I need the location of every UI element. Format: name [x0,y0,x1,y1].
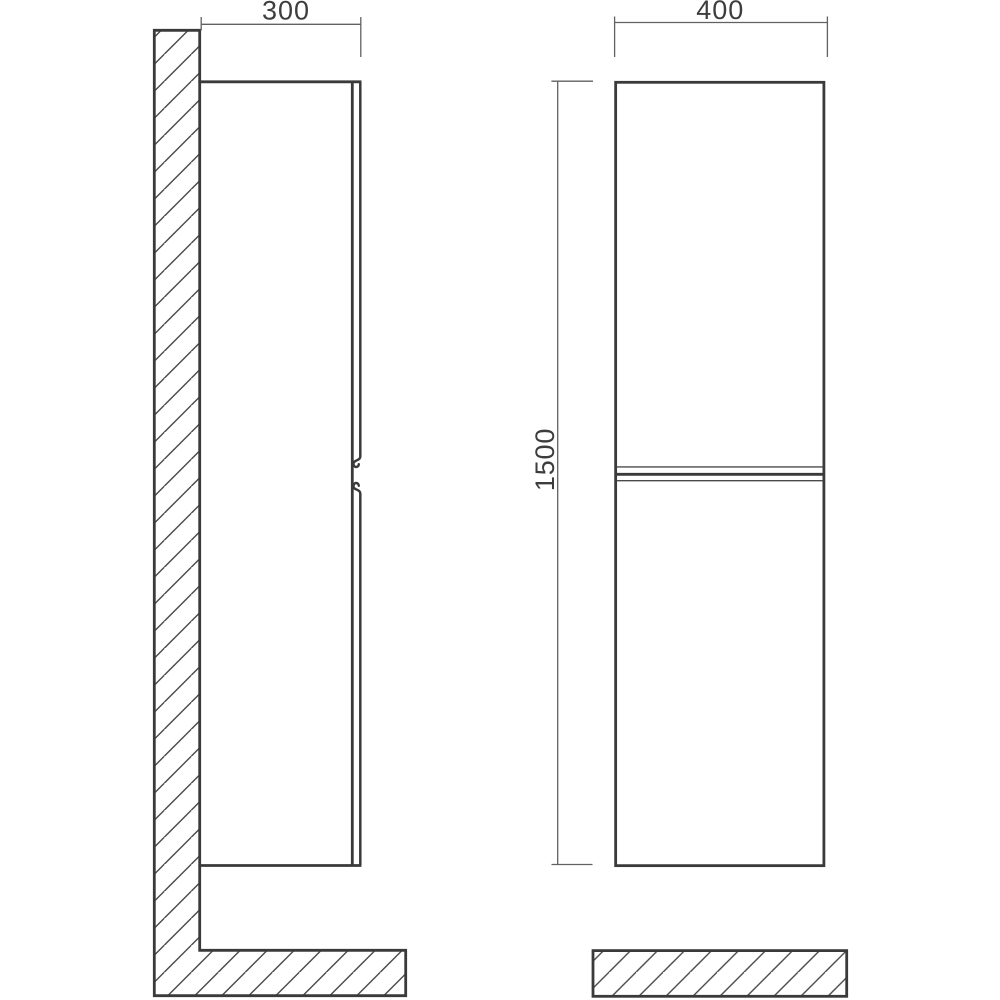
svg-text:1500: 1500 [530,428,560,491]
svg-text:400: 400 [696,0,744,25]
svg-text:300: 300 [262,0,310,25]
